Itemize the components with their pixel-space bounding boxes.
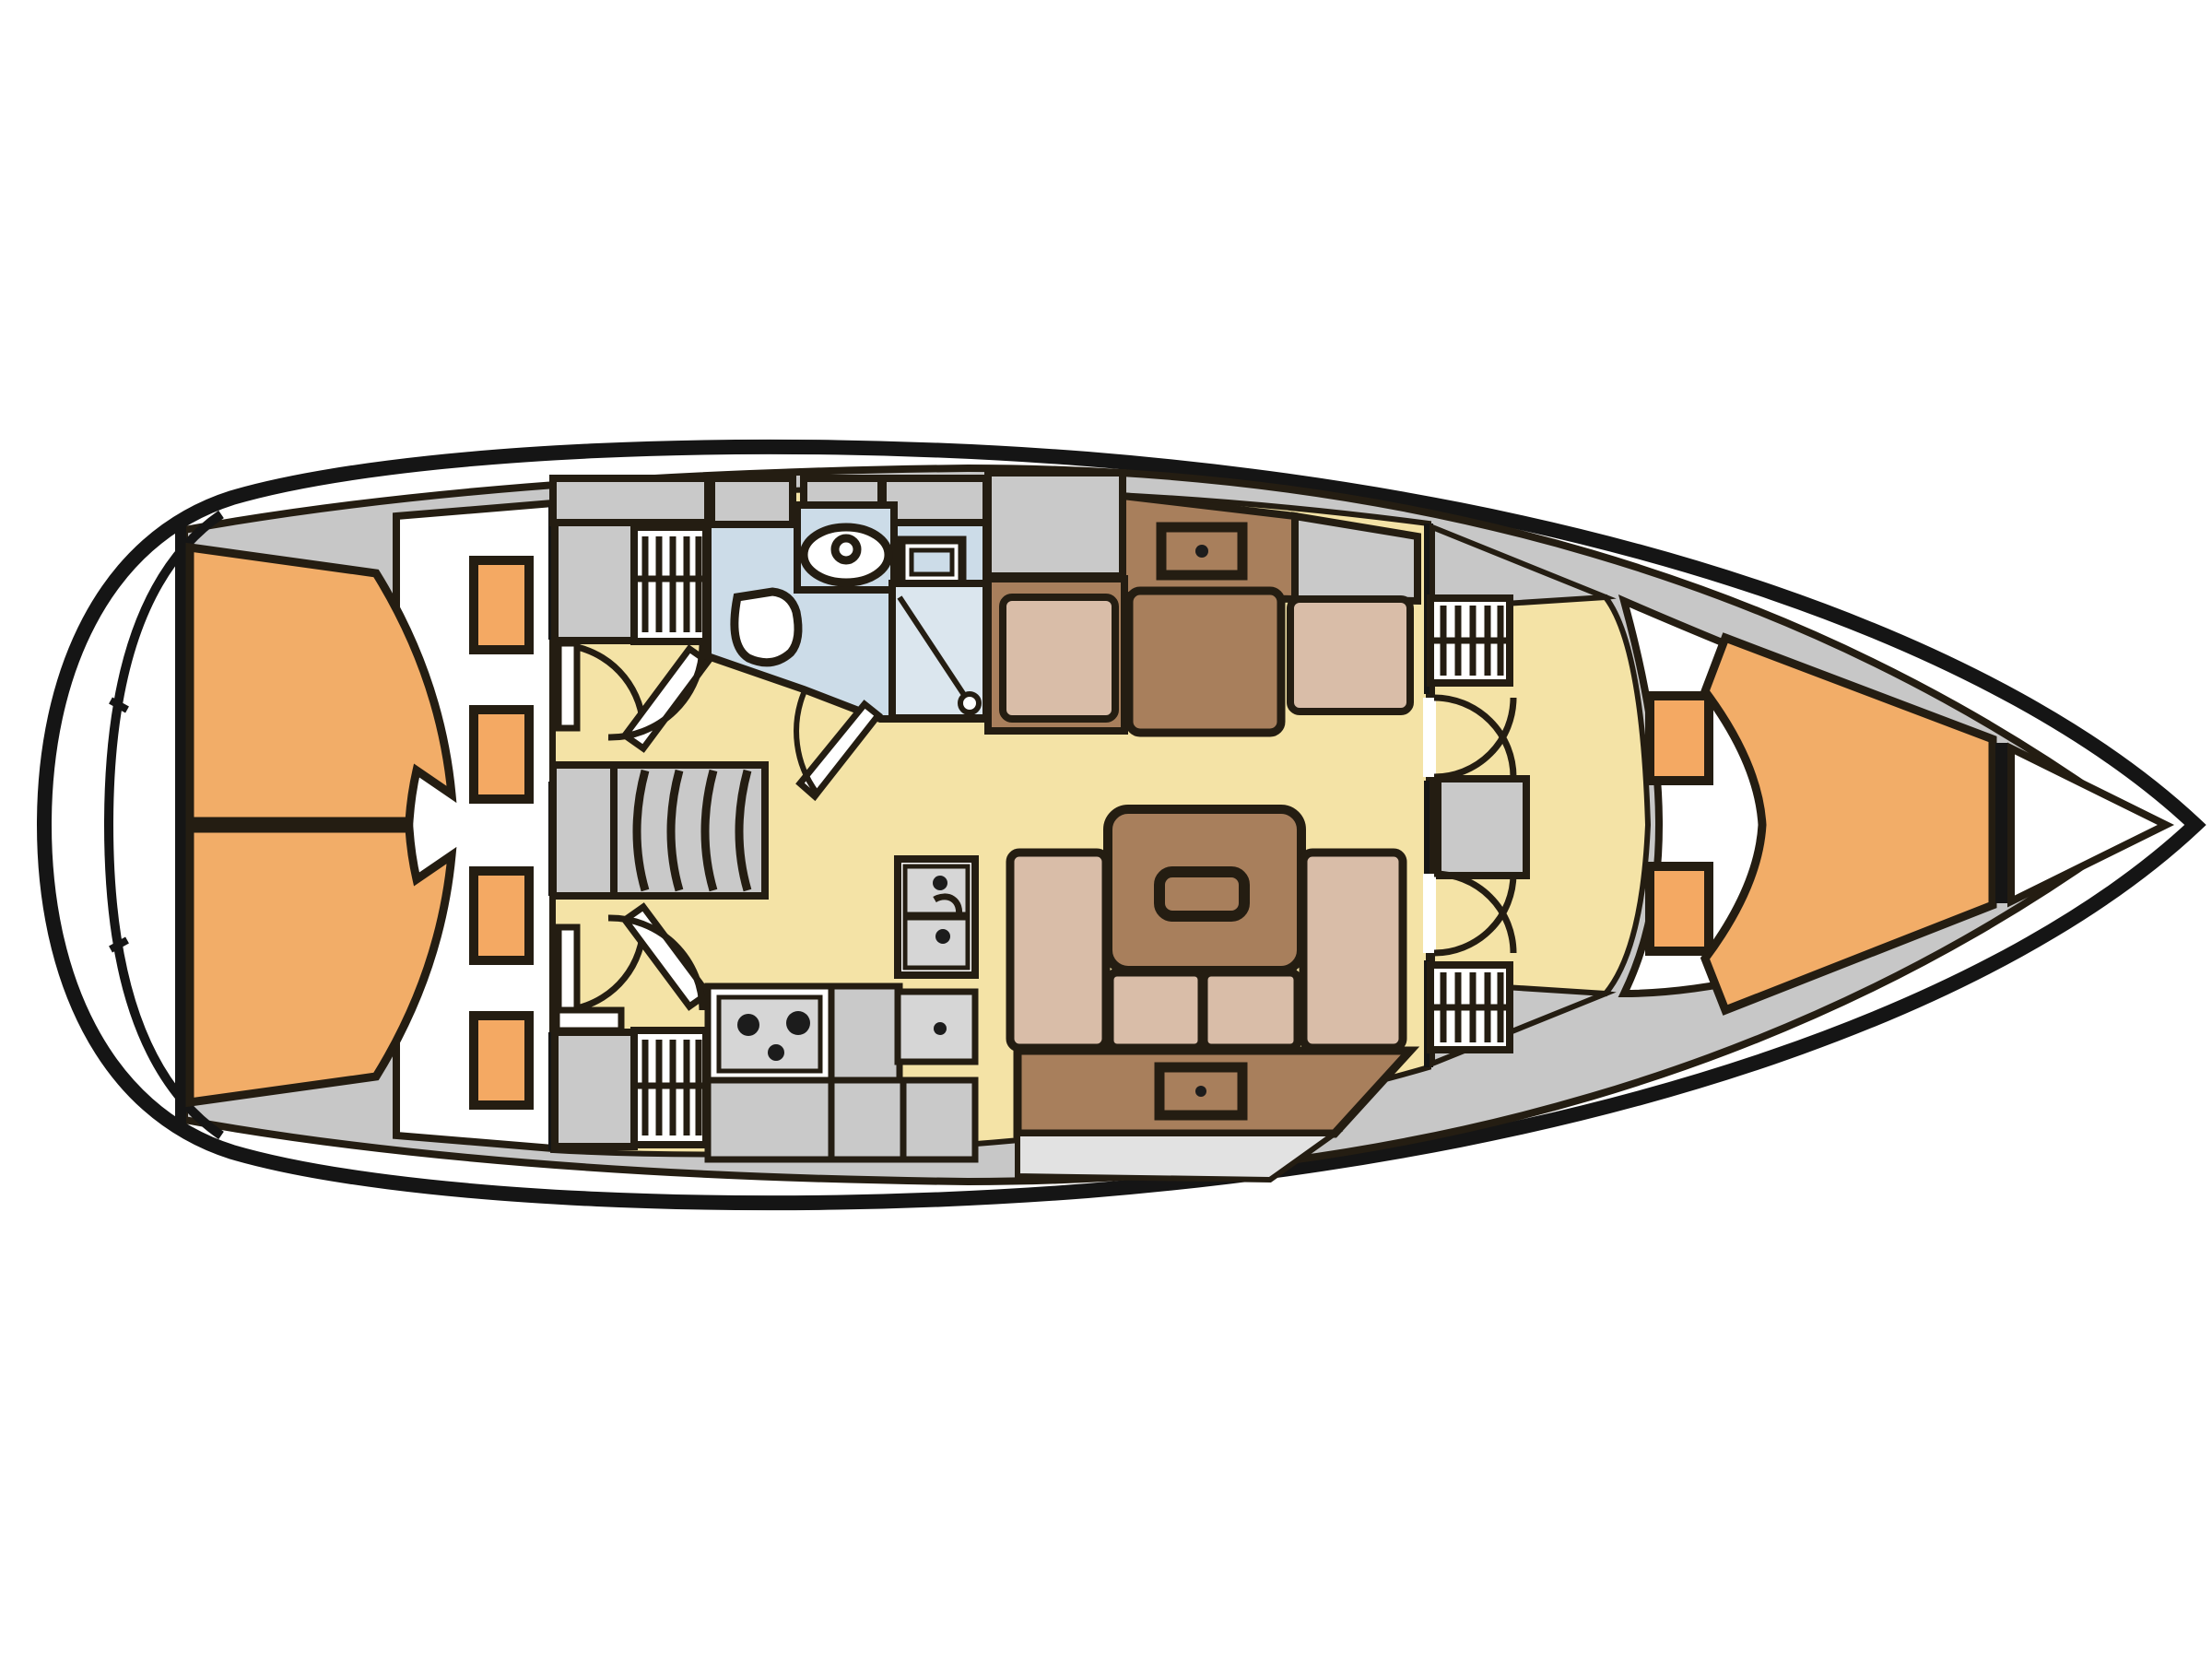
aft-cabin (190, 503, 553, 1148)
seat-cushion-right (1290, 599, 1410, 712)
hanging-locker-upper (634, 527, 706, 641)
fwd-wardrobe-upper (1430, 598, 1510, 683)
cushion-bottom-2 (1204, 972, 1298, 1048)
hanging-locker-lower (634, 1030, 706, 1145)
lower-backrest-knob (1195, 1086, 1206, 1097)
door-leaf (559, 643, 577, 728)
sink-drain-upper (933, 876, 947, 890)
door-gap (1423, 698, 1436, 777)
upper-table (1129, 591, 1281, 733)
galley-cabinet (898, 992, 975, 1062)
shower (892, 583, 986, 718)
counter-run (708, 1080, 975, 1159)
upper-locker-block (555, 523, 634, 641)
aft-hatch-3 (474, 871, 529, 960)
cushion-bottom-1 (1110, 972, 1202, 1048)
cushion-left (1010, 853, 1106, 1048)
sink-basin-lower (905, 918, 968, 968)
toilet (735, 592, 798, 663)
head-locker-3 (883, 478, 986, 523)
table-detail (1159, 872, 1244, 916)
aft-hatch-4 (474, 1016, 529, 1105)
backrest-knob (1195, 545, 1208, 558)
mirror-cabinet (901, 540, 962, 584)
fwd-hatch-2 (1650, 866, 1709, 951)
fwd-hatch-1 (1650, 696, 1709, 781)
galley-sink-unit (898, 859, 975, 975)
aft-hatch-1 (474, 560, 529, 650)
burner-2 (786, 1011, 810, 1035)
burner-1 (737, 1014, 759, 1036)
door-leaf (559, 927, 577, 1012)
lower-locker-block (555, 1032, 634, 1147)
stove (708, 986, 831, 1080)
upper-locker-left (988, 473, 1123, 576)
companionway-stairs (553, 765, 765, 896)
seat-cushion-left (1003, 597, 1115, 719)
fwd-mid-cabinet (1438, 779, 1526, 876)
galley-lower-counters (708, 1080, 975, 1159)
fwd-wardrobe-lower (1430, 965, 1510, 1050)
cushion-right (1303, 853, 1403, 1048)
head-locker-1 (712, 478, 793, 524)
cabinet-knob (934, 1022, 947, 1035)
door-sill (557, 1010, 621, 1030)
sink-drain-lower (935, 929, 950, 944)
galley-counter-mid (831, 986, 900, 1080)
sink-drain (835, 538, 857, 560)
mirror-glass (912, 550, 952, 574)
shower-drain (960, 694, 979, 712)
stairs-landing (553, 765, 614, 896)
top-locker (553, 478, 708, 523)
door-gap (1423, 874, 1436, 953)
stove-top (719, 997, 820, 1071)
aft-hatch-2 (474, 710, 529, 799)
burner-3 (768, 1044, 784, 1061)
floor-plan-page: Sailboat interior layout floor plan (top… (0, 0, 2212, 1659)
boat-floor-plan: Sailboat interior layout floor plan (top… (0, 0, 2212, 1659)
